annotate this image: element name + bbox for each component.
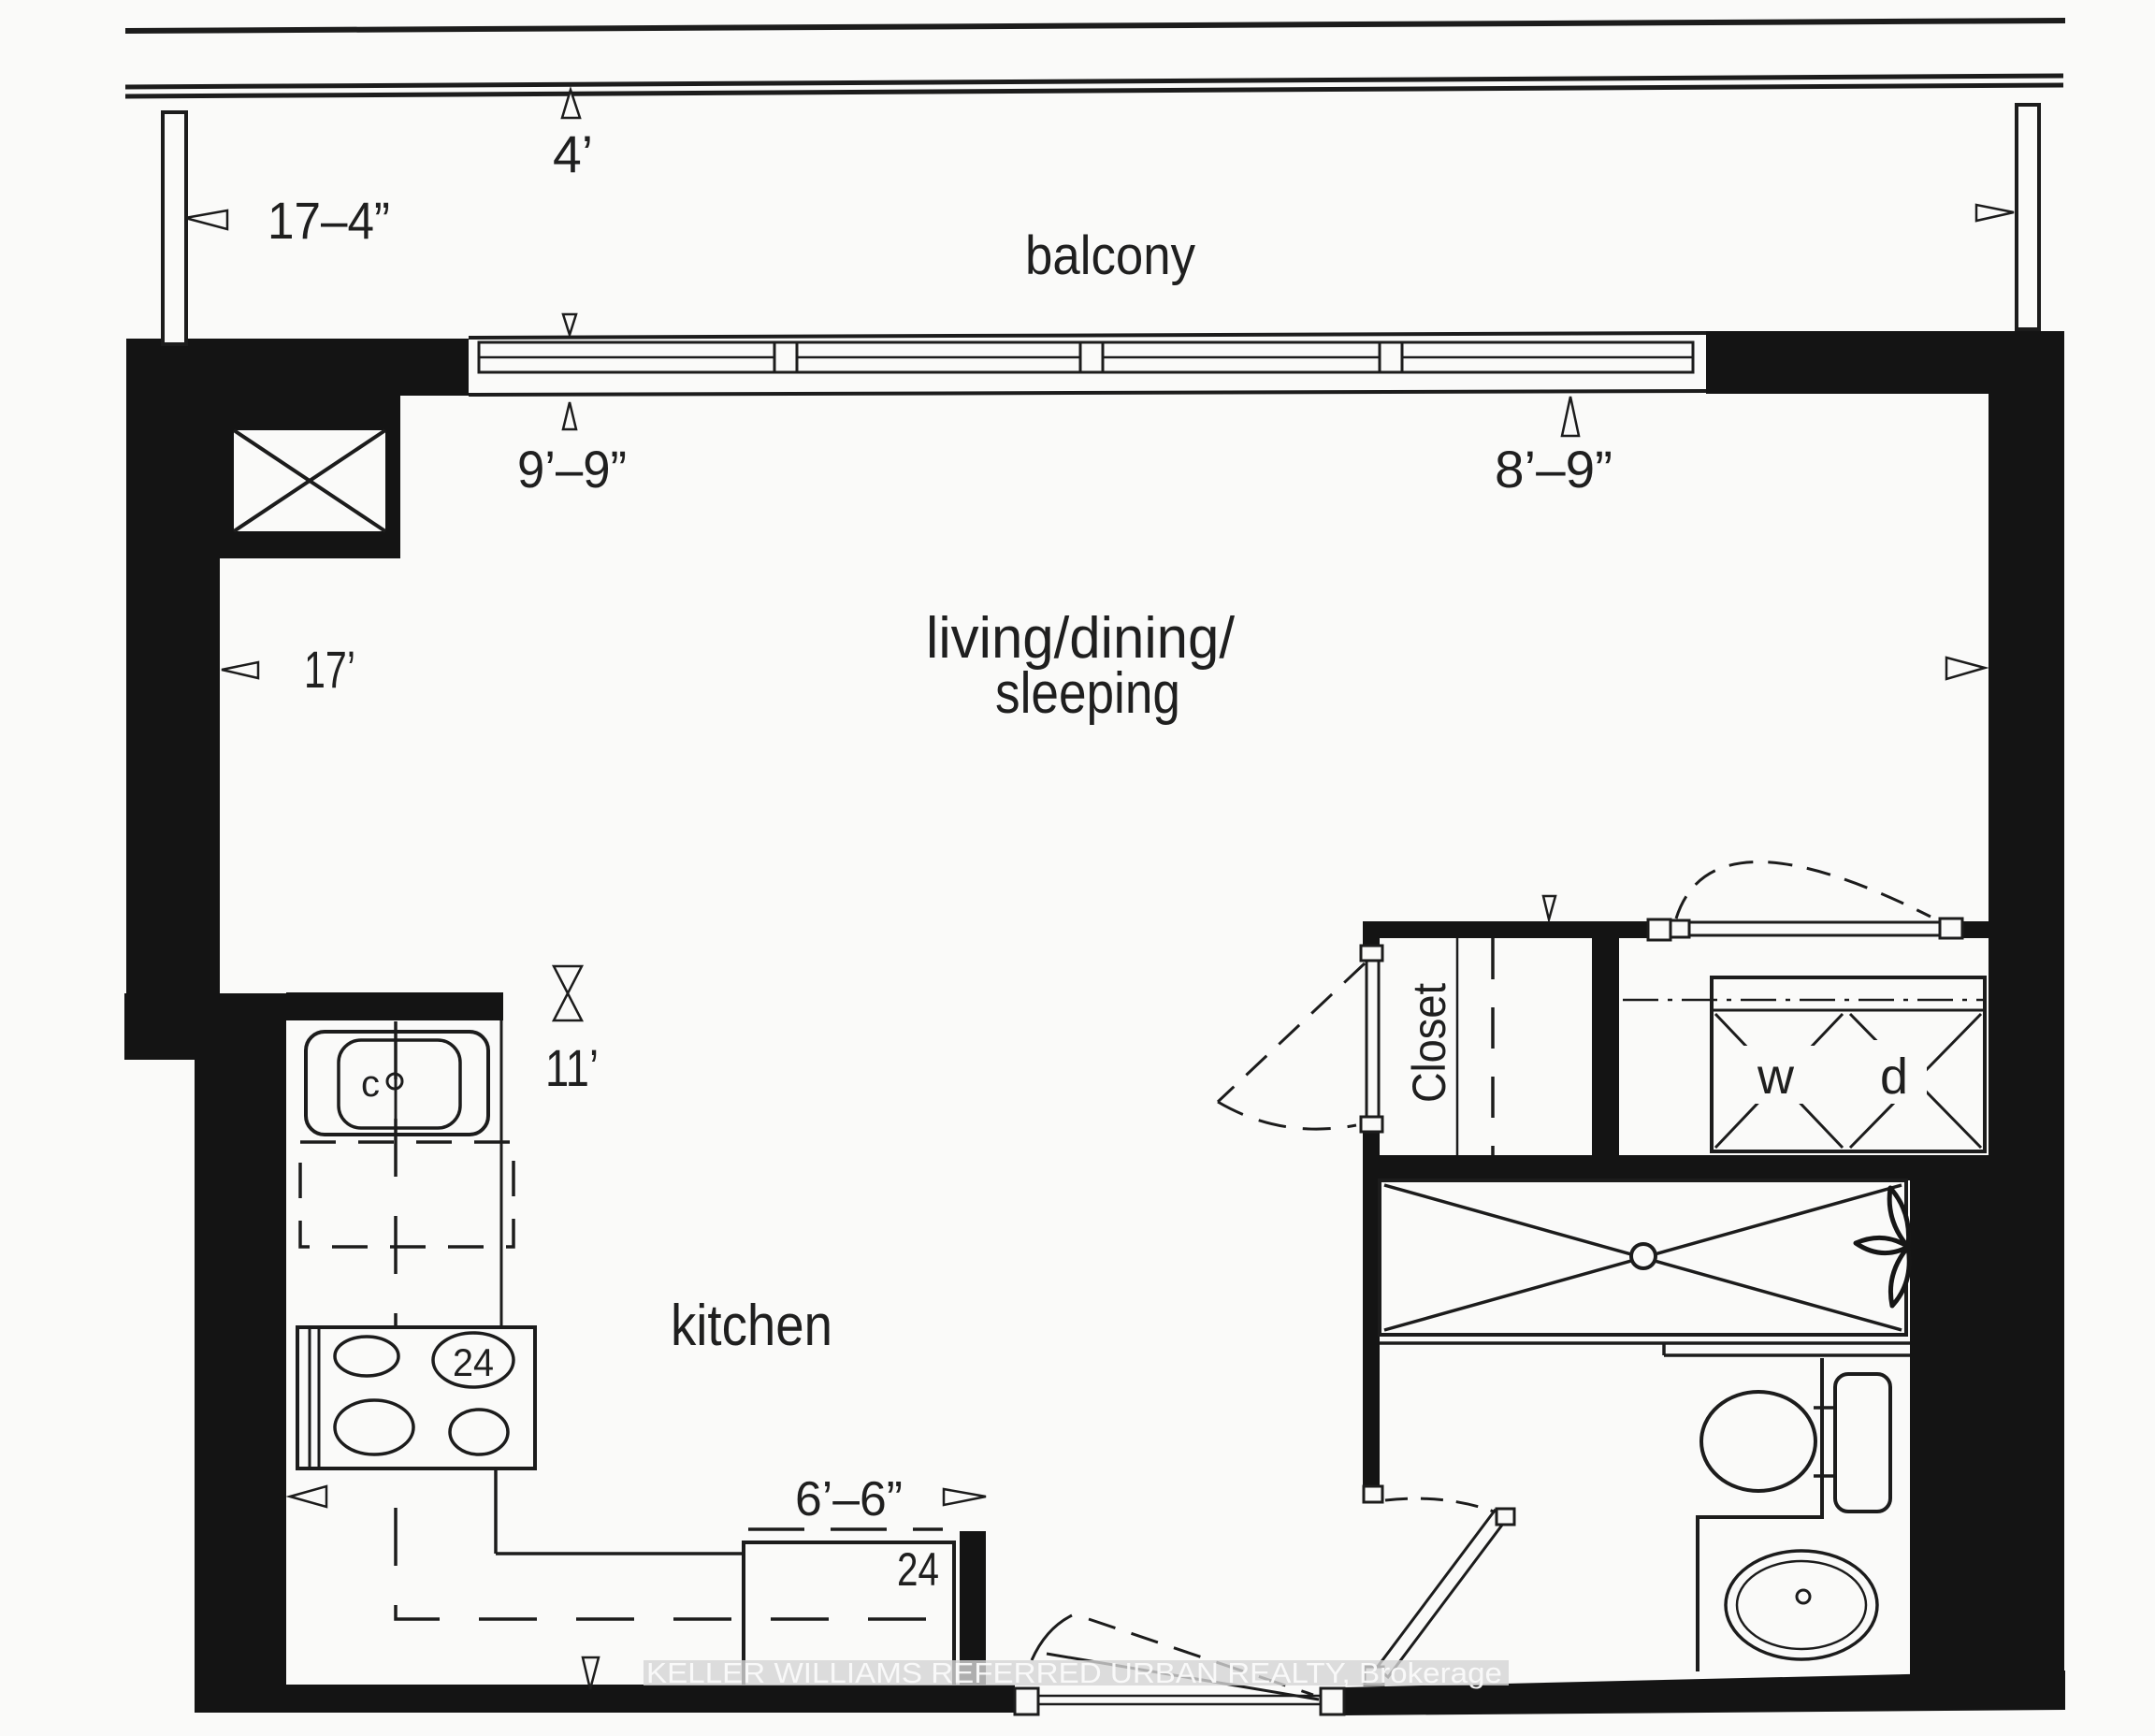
svg-text:24: 24 [453, 1340, 494, 1384]
svg-text:17’: 17’ [304, 640, 355, 699]
svg-text:8’–9”: 8’–9” [1495, 440, 1613, 499]
svg-text:w: w [1757, 1049, 1795, 1105]
svg-text:balcony: balcony [1025, 225, 1195, 286]
svg-text:KELLER WILLIAMS REFERRED URBAN: KELLER WILLIAMS REFERRED URBAN REALTY, B… [646, 1656, 1502, 1689]
svg-text:4’: 4’ [553, 124, 593, 183]
svg-text:kitchen: kitchen [671, 1294, 832, 1358]
svg-text:Closet: Closet [1403, 983, 1455, 1103]
svg-text:11’: 11’ [545, 1038, 599, 1097]
svg-text:6’–6”: 6’–6” [795, 1472, 903, 1526]
svg-text:17–4”: 17–4” [268, 191, 390, 250]
svg-text:c: c [361, 1063, 380, 1105]
svg-text:d: d [1880, 1049, 1908, 1105]
svg-text:sleeping: sleeping [995, 661, 1180, 726]
svg-text:24: 24 [897, 1543, 939, 1596]
svg-text:9’–9”: 9’–9” [517, 440, 627, 499]
